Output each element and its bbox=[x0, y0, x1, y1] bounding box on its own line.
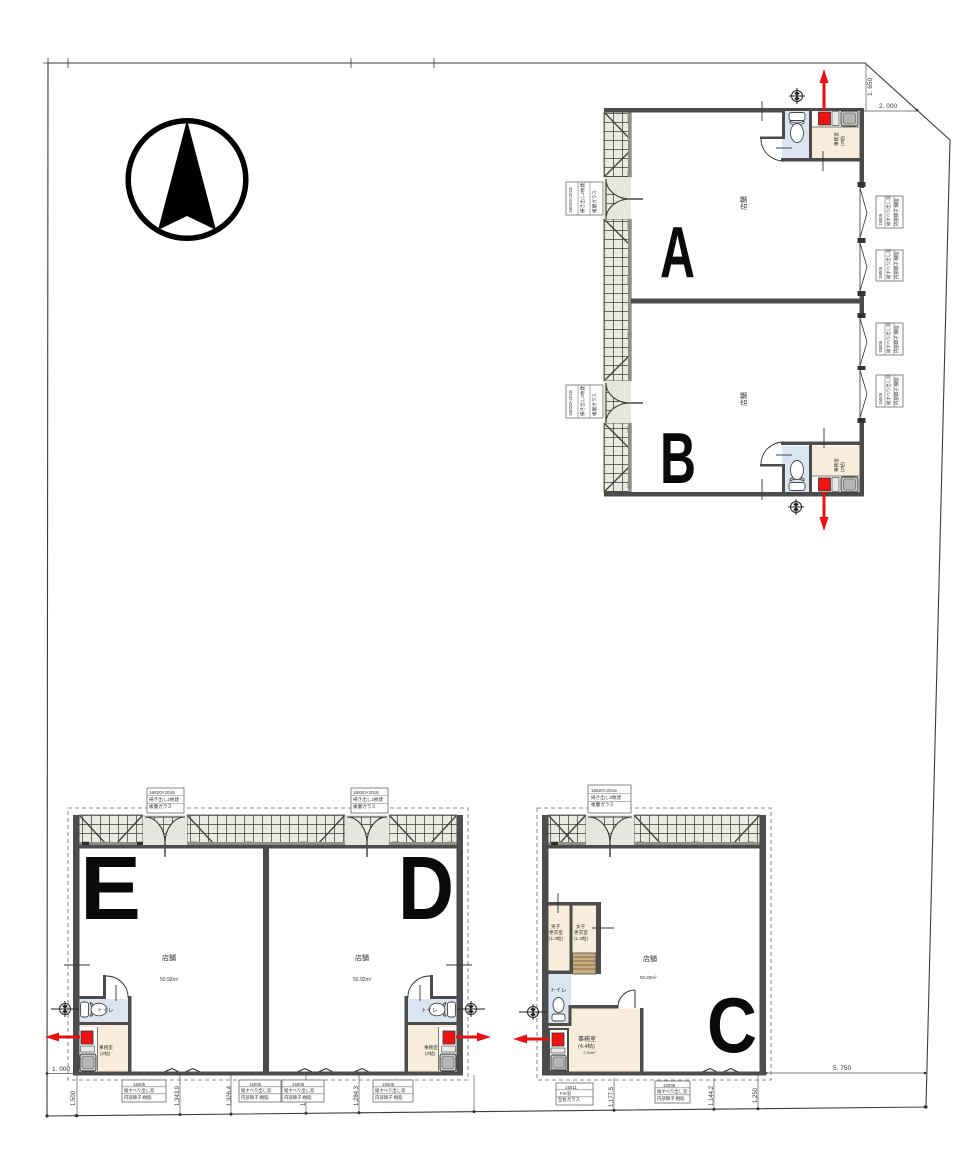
svg-text:1,326.4: 1,326.4 bbox=[227, 1085, 233, 1106]
svg-text:縦すべり出し窓: 縦すべり出し窓 bbox=[657, 1088, 688, 1095]
svg-text:1,250: 1,250 bbox=[753, 1087, 759, 1103]
svg-text:(1.3帖): (1.3帖) bbox=[549, 935, 564, 942]
svg-text:複層ガラス: 複層ガラス bbox=[149, 803, 172, 810]
svg-text:掃き出し2枚建: 掃き出し2枚建 bbox=[591, 794, 622, 801]
svg-text:D: D bbox=[398, 839, 454, 939]
svg-text:縦すべり出し窓: 縦すべり出し窓 bbox=[885, 195, 892, 226]
svg-text:内部障子:樹脂: 内部障子:樹脂 bbox=[657, 1095, 685, 1102]
svg-text:(2帖): (2帖) bbox=[839, 135, 846, 146]
svg-text:15005: 15005 bbox=[382, 1082, 395, 1087]
svg-text:縦すべり出し窓: 縦すべり出し窓 bbox=[885, 248, 892, 279]
svg-text:5. 750: 5. 750 bbox=[833, 1065, 851, 1072]
svg-text:50.92m²: 50.92m² bbox=[160, 977, 179, 983]
svg-text:縦すべり出し窓: 縦すべり出し窓 bbox=[241, 1087, 272, 1094]
svg-text:複層ガラス: 複層ガラス bbox=[591, 801, 614, 808]
svg-text:トイレ: トイレ bbox=[421, 1008, 438, 1014]
svg-text:1.500: 1.500 bbox=[71, 1090, 77, 1106]
svg-text:50.20m²: 50.20m² bbox=[640, 975, 657, 980]
svg-text:女子: 女子 bbox=[576, 923, 586, 930]
svg-text:1,177.5: 1,177.5 bbox=[609, 1086, 615, 1107]
svg-text:複層ガラス: 複層ガラス bbox=[591, 393, 598, 416]
svg-text:事務室: 事務室 bbox=[833, 458, 840, 472]
svg-text:15011: 15011 bbox=[565, 1085, 577, 1090]
svg-text:7.24m²: 7.24m² bbox=[583, 1050, 596, 1055]
svg-text:1,284.3: 1,284.3 bbox=[354, 1085, 360, 1106]
svg-text:掃き出し2枚建: 掃き出し2枚建 bbox=[353, 796, 384, 803]
svg-text:事務室: 事務室 bbox=[833, 132, 840, 146]
svg-text:トイレ: トイレ bbox=[550, 988, 567, 994]
svg-text:16020×2018: 16020×2018 bbox=[568, 390, 573, 416]
svg-text:事務室: 事務室 bbox=[99, 1044, 113, 1051]
svg-text:15005: 15005 bbox=[249, 1082, 262, 1087]
svg-text:縦すべり出し窓: 縦すべり出し窓 bbox=[284, 1087, 315, 1094]
svg-text:16820×2018: 16820×2018 bbox=[149, 790, 175, 795]
svg-text:店舗: 店舗 bbox=[739, 196, 748, 210]
svg-text:トイレ: トイレ bbox=[97, 1008, 114, 1014]
svg-text:内部障子:樹脂: 内部障子:樹脂 bbox=[375, 1094, 403, 1101]
svg-text:複層ガラス: 複層ガラス bbox=[591, 190, 598, 213]
svg-text:16820×2018: 16820×2018 bbox=[353, 790, 379, 795]
svg-text:店舗: 店舗 bbox=[355, 953, 369, 962]
svg-text:更衣室: 更衣室 bbox=[574, 929, 588, 936]
svg-text:事務室: 事務室 bbox=[578, 1035, 596, 1043]
svg-text:店舗: 店舗 bbox=[643, 954, 657, 963]
svg-text:掃き出し2枚建: 掃き出し2枚建 bbox=[579, 182, 586, 213]
svg-text:内部障子:樹脂: 内部障子:樹脂 bbox=[124, 1094, 152, 1101]
svg-text:縦すべり出し窓: 縦すべり出し窓 bbox=[885, 374, 892, 405]
svg-text:店舗: 店舗 bbox=[739, 392, 748, 406]
svg-text:(1.3帖): (1.3帖) bbox=[574, 935, 589, 942]
svg-text:15005: 15005 bbox=[292, 1082, 305, 1087]
svg-text:店舗: 店舗 bbox=[162, 953, 176, 962]
svg-text:50.92m²: 50.92m² bbox=[353, 977, 372, 983]
svg-text:B: B bbox=[660, 419, 696, 499]
svg-text:掃き出し2枚建: 掃き出し2枚建 bbox=[579, 385, 586, 416]
svg-text:16820×2018: 16820×2018 bbox=[591, 788, 617, 793]
svg-text:C: C bbox=[707, 981, 757, 1069]
svg-text:16020×2018: 16020×2018 bbox=[568, 187, 573, 213]
svg-text:15005: 15005 bbox=[663, 1083, 676, 1088]
svg-text:1,144.2: 1,144.2 bbox=[709, 1085, 715, 1106]
svg-text:A: A bbox=[660, 213, 695, 293]
svg-text:1. 650: 1. 650 bbox=[867, 78, 874, 96]
svg-text:15005: 15005 bbox=[878, 340, 883, 353]
svg-text:縦すべり出し窓: 縦すべり出し窓 bbox=[885, 322, 892, 353]
svg-text:複層ガラス: 複層ガラス bbox=[353, 803, 376, 810]
svg-text:掃き出し2枚建: 掃き出し2枚建 bbox=[149, 796, 180, 803]
svg-text:内部障子:樹脂: 内部障子:樹脂 bbox=[241, 1094, 269, 1101]
svg-text:縦すべり出し窓: 縦すべり出し窓 bbox=[124, 1087, 155, 1094]
svg-text:15005: 15005 bbox=[878, 213, 883, 226]
svg-text:(2帖): (2帖) bbox=[425, 1050, 436, 1057]
svg-text:内部障子:樹脂: 内部障子:樹脂 bbox=[284, 1094, 312, 1101]
svg-text:2. 000: 2. 000 bbox=[879, 103, 897, 110]
svg-text:1,343.9: 1,343.9 bbox=[175, 1085, 181, 1106]
svg-text:事務室: 事務室 bbox=[424, 1044, 438, 1051]
svg-text:(2帖): (2帖) bbox=[100, 1050, 111, 1057]
svg-text:FIX窓: FIX窓 bbox=[560, 1090, 572, 1096]
svg-text:男子: 男子 bbox=[551, 923, 561, 930]
svg-text:15005: 15005 bbox=[878, 392, 883, 405]
svg-text:縦すべり出し窓: 縦すべり出し窓 bbox=[375, 1087, 406, 1094]
svg-text:E: E bbox=[80, 839, 141, 939]
svg-text:(4.4帖): (4.4帖) bbox=[578, 1042, 595, 1050]
svg-text:(2帖): (2帖) bbox=[839, 461, 846, 472]
svg-text:更衣室: 更衣室 bbox=[549, 929, 563, 936]
svg-text:15005: 15005 bbox=[878, 266, 883, 279]
svg-text:15005: 15005 bbox=[133, 1082, 146, 1087]
